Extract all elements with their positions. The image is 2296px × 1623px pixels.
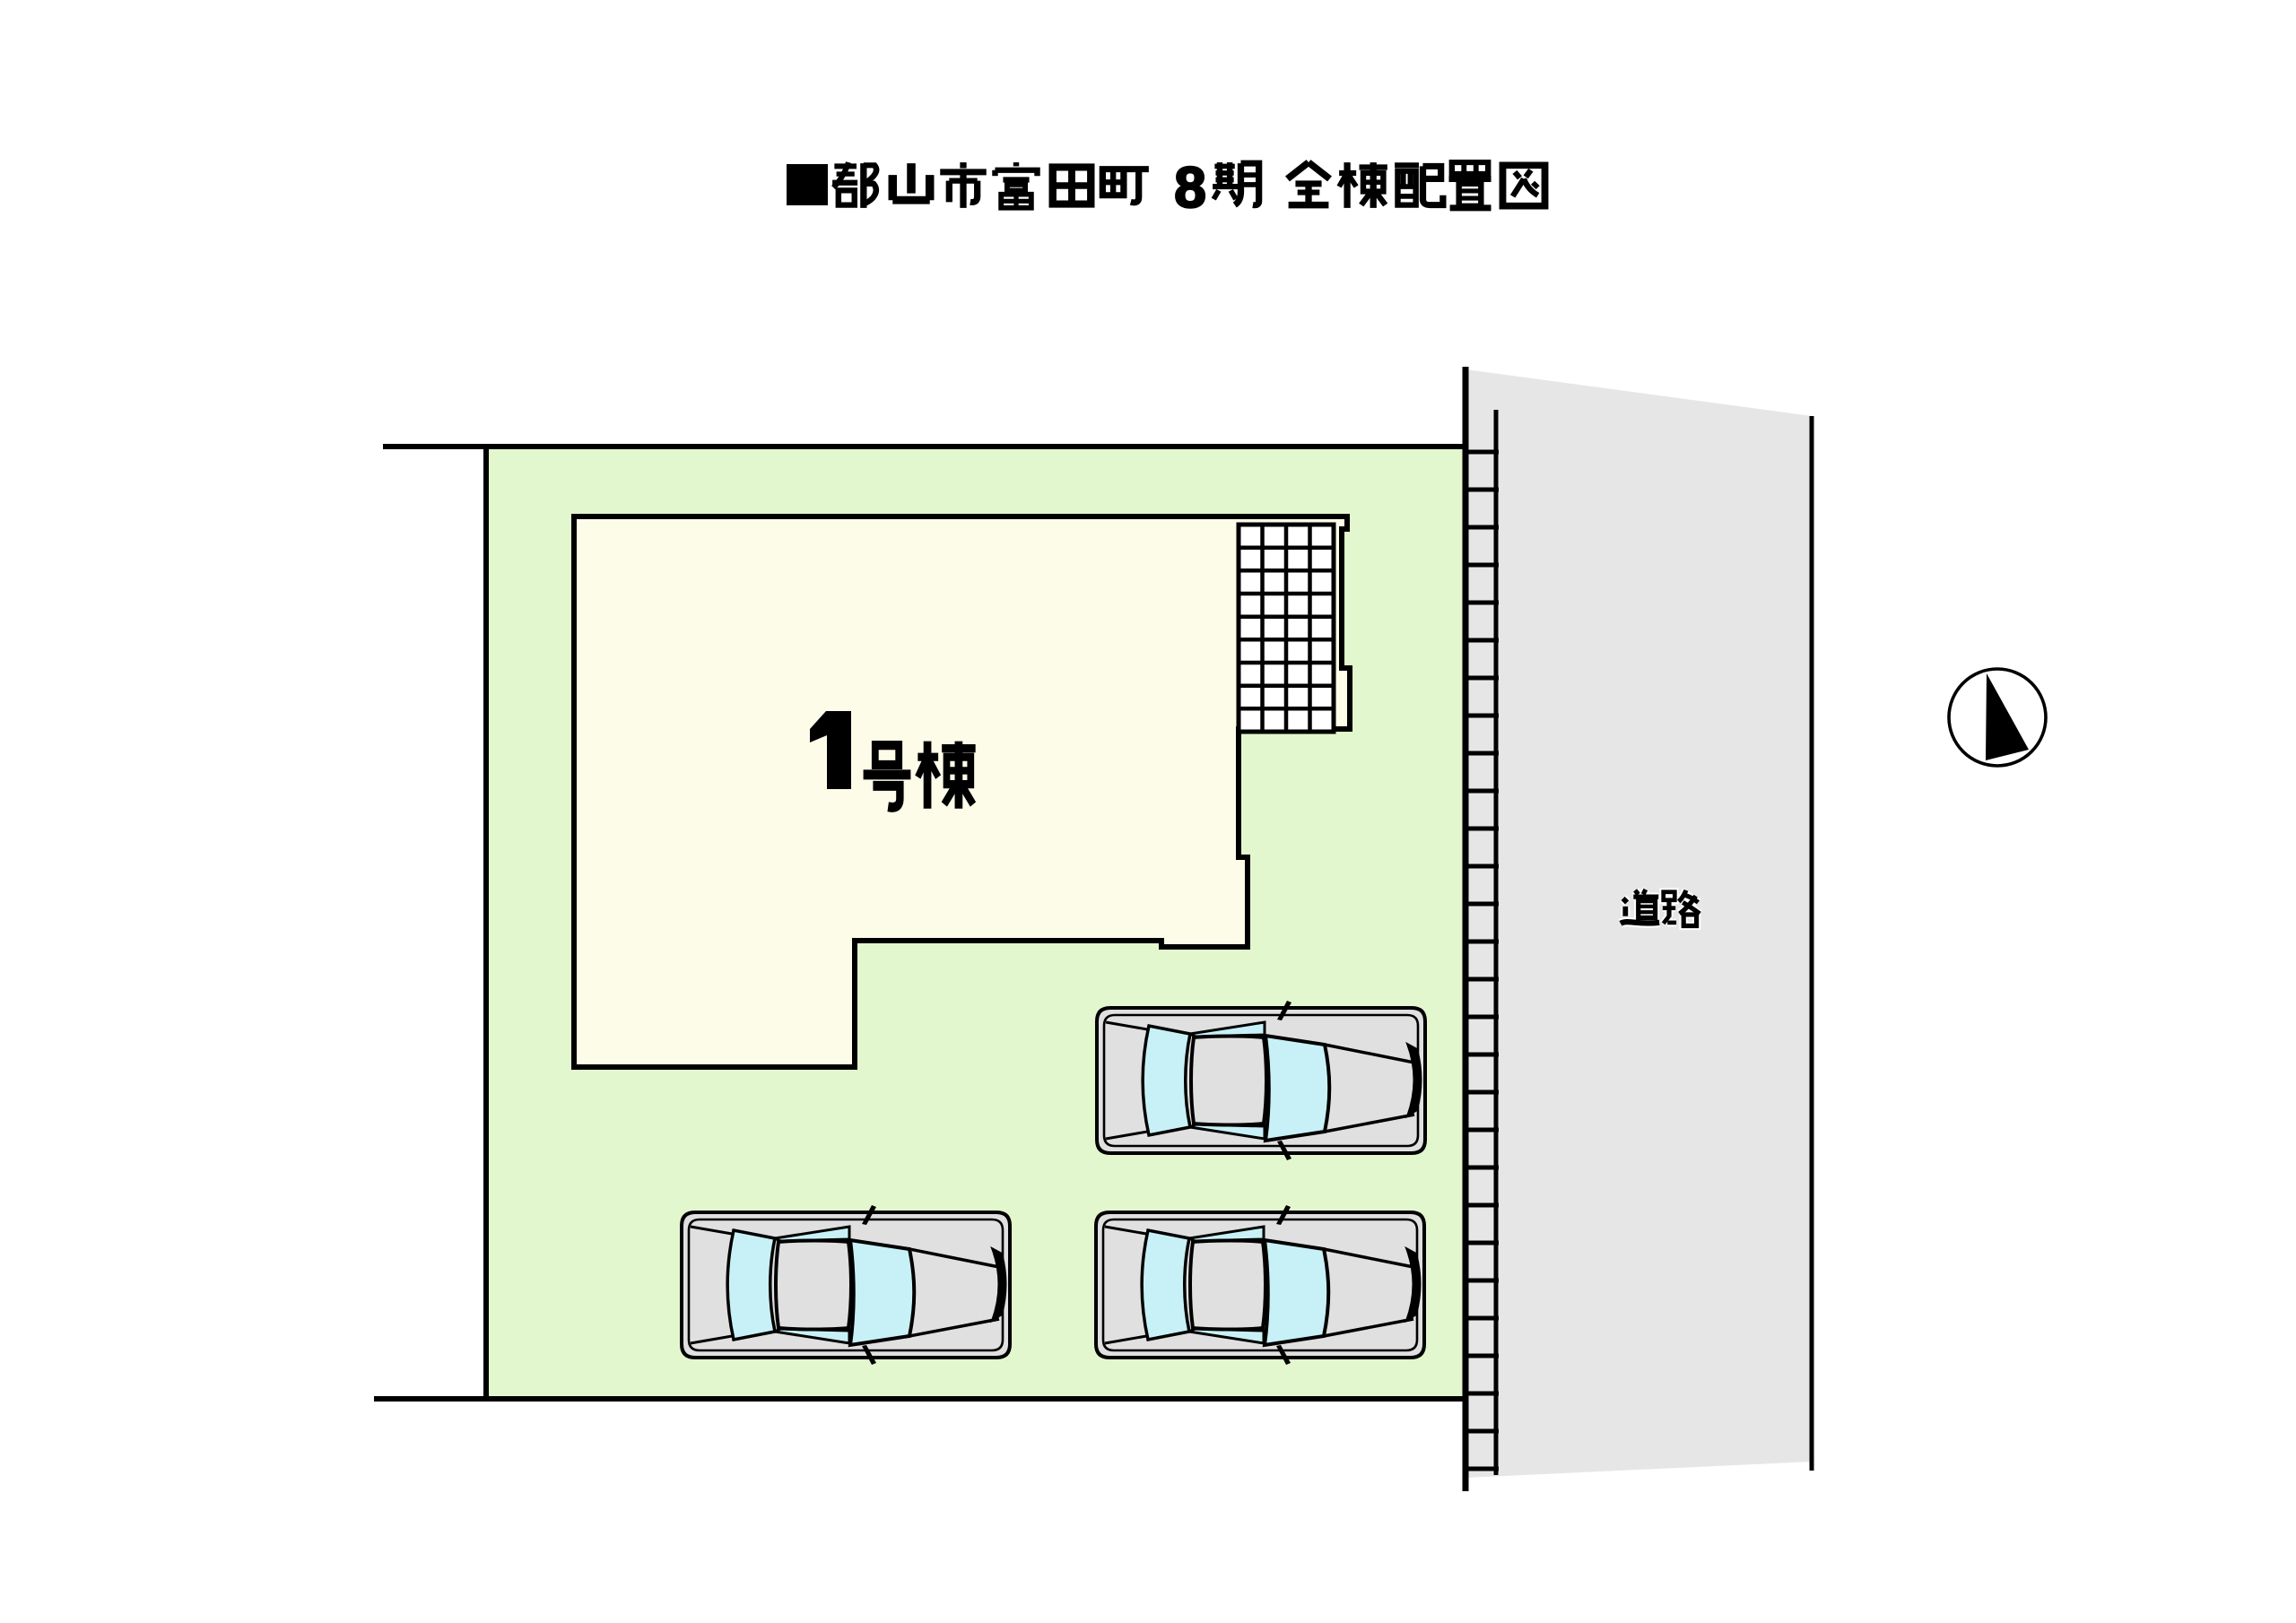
svg-text:8: 8 [1174, 155, 1206, 220]
